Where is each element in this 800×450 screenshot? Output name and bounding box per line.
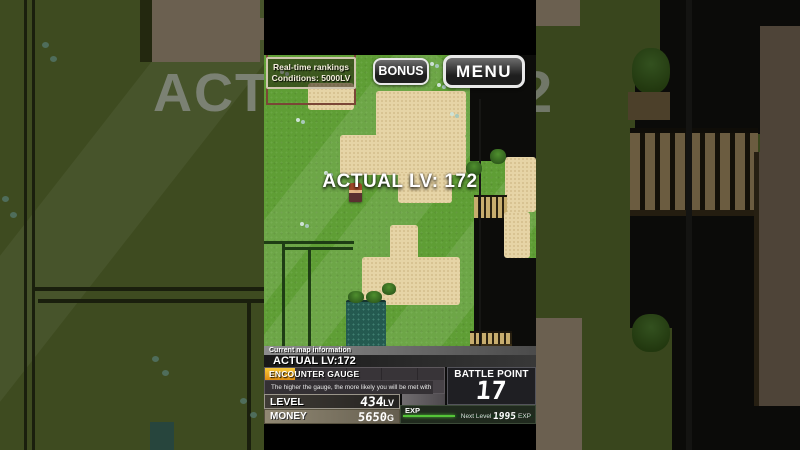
gauge-tick <box>381 368 382 380</box>
battle-point-value: 17 <box>475 379 507 403</box>
background-overlay-text-left: ACTU <box>153 66 264 120</box>
bush-sprite <box>632 314 670 352</box>
bridge-ladder <box>470 331 512 346</box>
background-right: 2 <box>536 0 800 450</box>
map-viewport[interactable]: ACTUAL LV: 172 Real-time rankings Condit… <box>264 55 536 346</box>
gauge-tick <box>417 368 418 380</box>
money-value-group: 5650G <box>358 408 394 426</box>
fence-line <box>285 247 353 250</box>
fence-line <box>38 299 264 303</box>
bush-sprite <box>348 291 364 303</box>
encounter-gauge-description: The higher the gauge, the more likely yo… <box>265 381 433 394</box>
flower-sprite <box>10 212 17 218</box>
money-row: MONEY 5650G <box>264 409 400 424</box>
bush-sprite <box>366 291 382 303</box>
flower-sprite <box>152 356 159 362</box>
letterbox-top <box>264 0 536 55</box>
encounter-gauge-panel: ENCOUNTER GAUGE The higher the gauge, th… <box>264 367 445 394</box>
flower-sprite <box>450 112 454 116</box>
level-unit: LV <box>383 398 394 408</box>
sand-patch <box>152 0 260 62</box>
money-unit: G <box>387 413 394 423</box>
level-label: LEVEL <box>270 396 304 408</box>
fence-line <box>282 241 285 346</box>
money-label: MONEY <box>270 411 307 422</box>
flower-sprite <box>250 412 257 418</box>
fence-line <box>247 303 251 450</box>
cliff-shadow <box>630 216 674 328</box>
status-panel: Current map information ACTUAL LV:172 EN… <box>264 346 536 424</box>
bridge-ladder <box>630 128 758 216</box>
rankings-line2: Conditions: 5000LV <box>268 73 354 84</box>
flower-sprite <box>50 56 57 62</box>
sand-patch <box>536 318 582 450</box>
sand-path <box>390 225 418 261</box>
bush-sprite <box>632 48 670 94</box>
flower-sprite <box>162 370 169 376</box>
battle-point-panel: BATTLE POINT 17 <box>447 367 536 405</box>
sand-patch <box>257 18 264 40</box>
exp-panel: EXP Next Level 1995 EXP <box>400 405 536 424</box>
bush-sprite <box>490 149 506 164</box>
background-overlay-text-right: 2 <box>536 64 554 122</box>
flower-sprite <box>42 42 49 48</box>
sand-column <box>760 26 800 156</box>
money-value: 5650 <box>357 410 387 424</box>
menu-button[interactable]: MENU <box>443 55 525 88</box>
sand-column <box>504 212 530 258</box>
exp-next-value: 1995 <box>493 411 517 422</box>
bonus-button[interactable]: BONUS <box>373 58 429 85</box>
pond <box>346 300 386 346</box>
exp-next-level: Next Level 1995 EXP <box>461 411 531 422</box>
encounter-gauge-title: ENCOUNTER GAUGE <box>269 369 359 379</box>
flower-sprite <box>2 196 9 202</box>
flower-sprite <box>437 83 441 87</box>
cliff-shadow <box>754 406 800 450</box>
dirt-patch <box>628 92 670 120</box>
game-viewport: ACTUAL LV: 172 Real-time rankings Condit… <box>264 0 536 450</box>
exp-next-label: Next Level <box>461 413 492 420</box>
exp-progress-fill <box>403 415 455 417</box>
exp-label: EXP <box>405 406 420 415</box>
rankings-box: Real-time rankings Conditions: 5000LV <box>266 57 356 89</box>
fence-line <box>34 287 264 291</box>
sand-column <box>754 152 800 408</box>
flower-sprite <box>296 118 300 122</box>
background-left: ACTU <box>0 0 264 450</box>
fence-line <box>24 0 27 450</box>
flower-sprite <box>300 222 304 226</box>
sand-patch <box>536 0 580 26</box>
flower-sprite <box>240 398 247 404</box>
actual-lv-bar: ACTUAL LV:172 <box>264 355 536 367</box>
exp-next-unit: EXP <box>518 413 531 420</box>
fence-line <box>308 247 311 346</box>
bush-sprite <box>382 283 396 295</box>
pole-line <box>686 0 692 450</box>
letterbox-bottom <box>264 424 536 450</box>
cliff-shadow <box>680 0 800 28</box>
fence-line <box>32 0 35 450</box>
fence-line <box>264 241 354 244</box>
cliff-shadow <box>140 0 152 62</box>
flower-sprite <box>430 62 434 66</box>
water-patch <box>150 422 174 450</box>
map-info-header: Current map information <box>264 346 536 355</box>
pole-line <box>479 99 481 346</box>
actual-lv-overlay: ACTUAL LV: 172 <box>264 171 536 193</box>
sand-path <box>340 135 466 175</box>
screen: ACTU 2 <box>0 0 800 450</box>
rankings-line1: Real-time rankings <box>268 62 354 73</box>
